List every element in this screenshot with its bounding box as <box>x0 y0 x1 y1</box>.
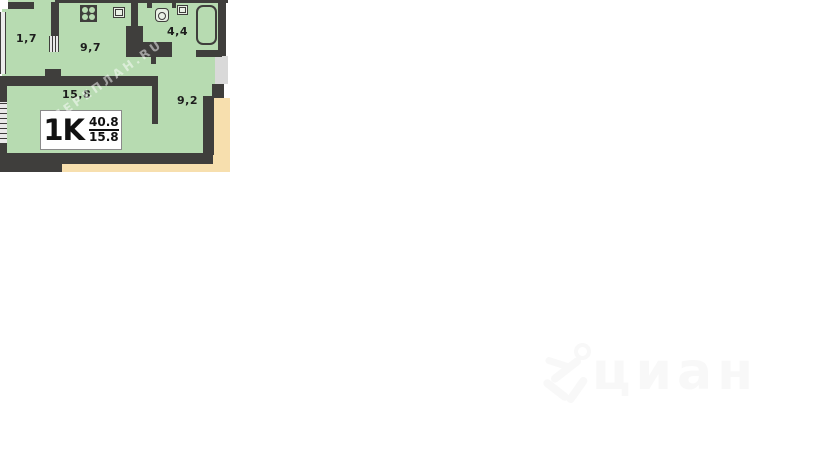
window-balcony-kitchen <box>49 36 59 52</box>
window-right <box>215 56 228 84</box>
apartment-areas: 40.8 15.8 <box>89 116 119 144</box>
wall <box>0 86 7 102</box>
wall <box>45 69 61 76</box>
window-living-left <box>0 102 7 144</box>
outside-area-right <box>213 98 230 164</box>
background-patch <box>0 0 8 9</box>
room-label-balcony: 1,7 <box>16 33 37 44</box>
area-living: 15.8 <box>89 129 119 144</box>
wall <box>0 144 7 164</box>
window-balcony-left <box>0 12 6 74</box>
toilet-icon <box>155 8 169 22</box>
room-label-hallway: 9,2 <box>177 95 198 106</box>
brand-logo-person-icon <box>565 375 589 404</box>
wall <box>218 0 226 56</box>
bathroom-sink-icon <box>177 5 188 15</box>
wall <box>147 0 152 8</box>
wall <box>8 2 34 9</box>
wall <box>51 2 59 36</box>
wall <box>0 153 62 172</box>
wall <box>131 3 138 27</box>
wall <box>152 86 158 124</box>
wall <box>0 76 158 86</box>
kitchen-sink-icon <box>113 7 125 18</box>
stove-icon <box>80 5 97 22</box>
apartment-type: 1K <box>43 116 84 145</box>
wall <box>203 96 214 155</box>
wall <box>55 0 228 3</box>
area-total: 40.8 <box>89 116 119 129</box>
floor-plan: 1,7 9,7 4,4 15,8 9,2 1K 40.8 15.8 ПЕРЕПЛ… <box>0 0 230 172</box>
room-label-bathroom: 4,4 <box>167 26 188 37</box>
bathtub-icon <box>196 5 217 45</box>
room-label-kitchen: 9,7 <box>80 42 101 53</box>
wall <box>151 57 156 64</box>
wall <box>172 0 176 8</box>
brand-logo-person-icon <box>545 356 572 371</box>
brand-watermark-text: циан <box>592 344 758 400</box>
